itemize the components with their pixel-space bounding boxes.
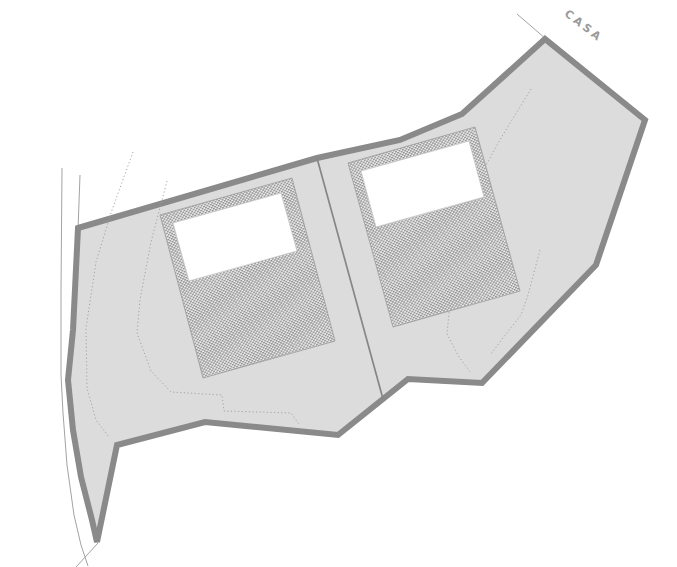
site-plan-canvas: CASA: [0, 0, 677, 567]
site-plan-drawing: [0, 0, 677, 567]
casa-leader-line: [517, 14, 546, 39]
boundary-extension-line-top-left: [78, 175, 80, 230]
parcel-boundary: [68, 39, 645, 542]
